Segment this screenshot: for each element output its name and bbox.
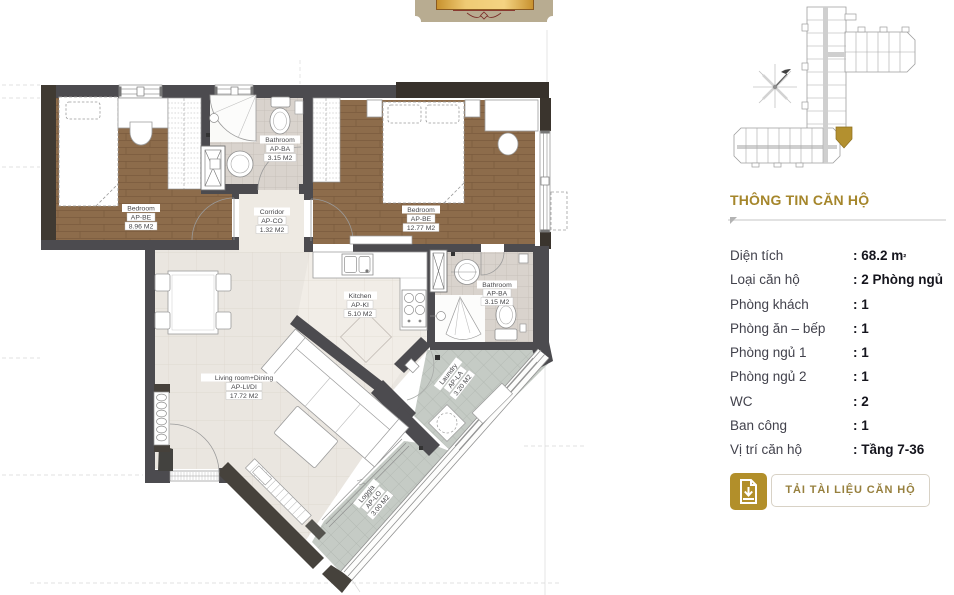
svg-text:3.15 M2: 3.15 M2 bbox=[268, 155, 293, 162]
svg-text:AP-BE: AP-BE bbox=[131, 215, 152, 222]
svg-text:5.10 M2: 5.10 M2 bbox=[348, 311, 373, 318]
svg-text:AP-BE: AP-BE bbox=[411, 216, 432, 223]
svg-text:Bathroom: Bathroom bbox=[265, 137, 295, 144]
svg-text:AP-BA: AP-BA bbox=[487, 291, 508, 298]
svg-text:17.72 M2: 17.72 M2 bbox=[230, 393, 259, 400]
svg-text:3.15 M2: 3.15 M2 bbox=[485, 299, 510, 306]
svg-text:Kitchen: Kitchen bbox=[349, 293, 372, 300]
svg-text:AP-LI/DI: AP-LI/DI bbox=[231, 384, 257, 391]
svg-text:1.32 M2: 1.32 M2 bbox=[260, 227, 285, 234]
svg-text:Bedroom: Bedroom bbox=[127, 206, 155, 213]
svg-text:Corridor: Corridor bbox=[260, 209, 285, 216]
svg-text:Bedroom: Bedroom bbox=[407, 207, 435, 214]
svg-text:AP-CO: AP-CO bbox=[261, 218, 283, 225]
svg-text:Bathroom: Bathroom bbox=[482, 282, 512, 289]
svg-text:AP-KI: AP-KI bbox=[351, 302, 369, 309]
svg-text:8.96 M2: 8.96 M2 bbox=[129, 224, 154, 231]
svg-text:Living room+Dining: Living room+Dining bbox=[215, 375, 274, 382]
svg-text:12.77 M2: 12.77 M2 bbox=[407, 225, 436, 232]
svg-text:AP-BA: AP-BA bbox=[270, 146, 291, 153]
